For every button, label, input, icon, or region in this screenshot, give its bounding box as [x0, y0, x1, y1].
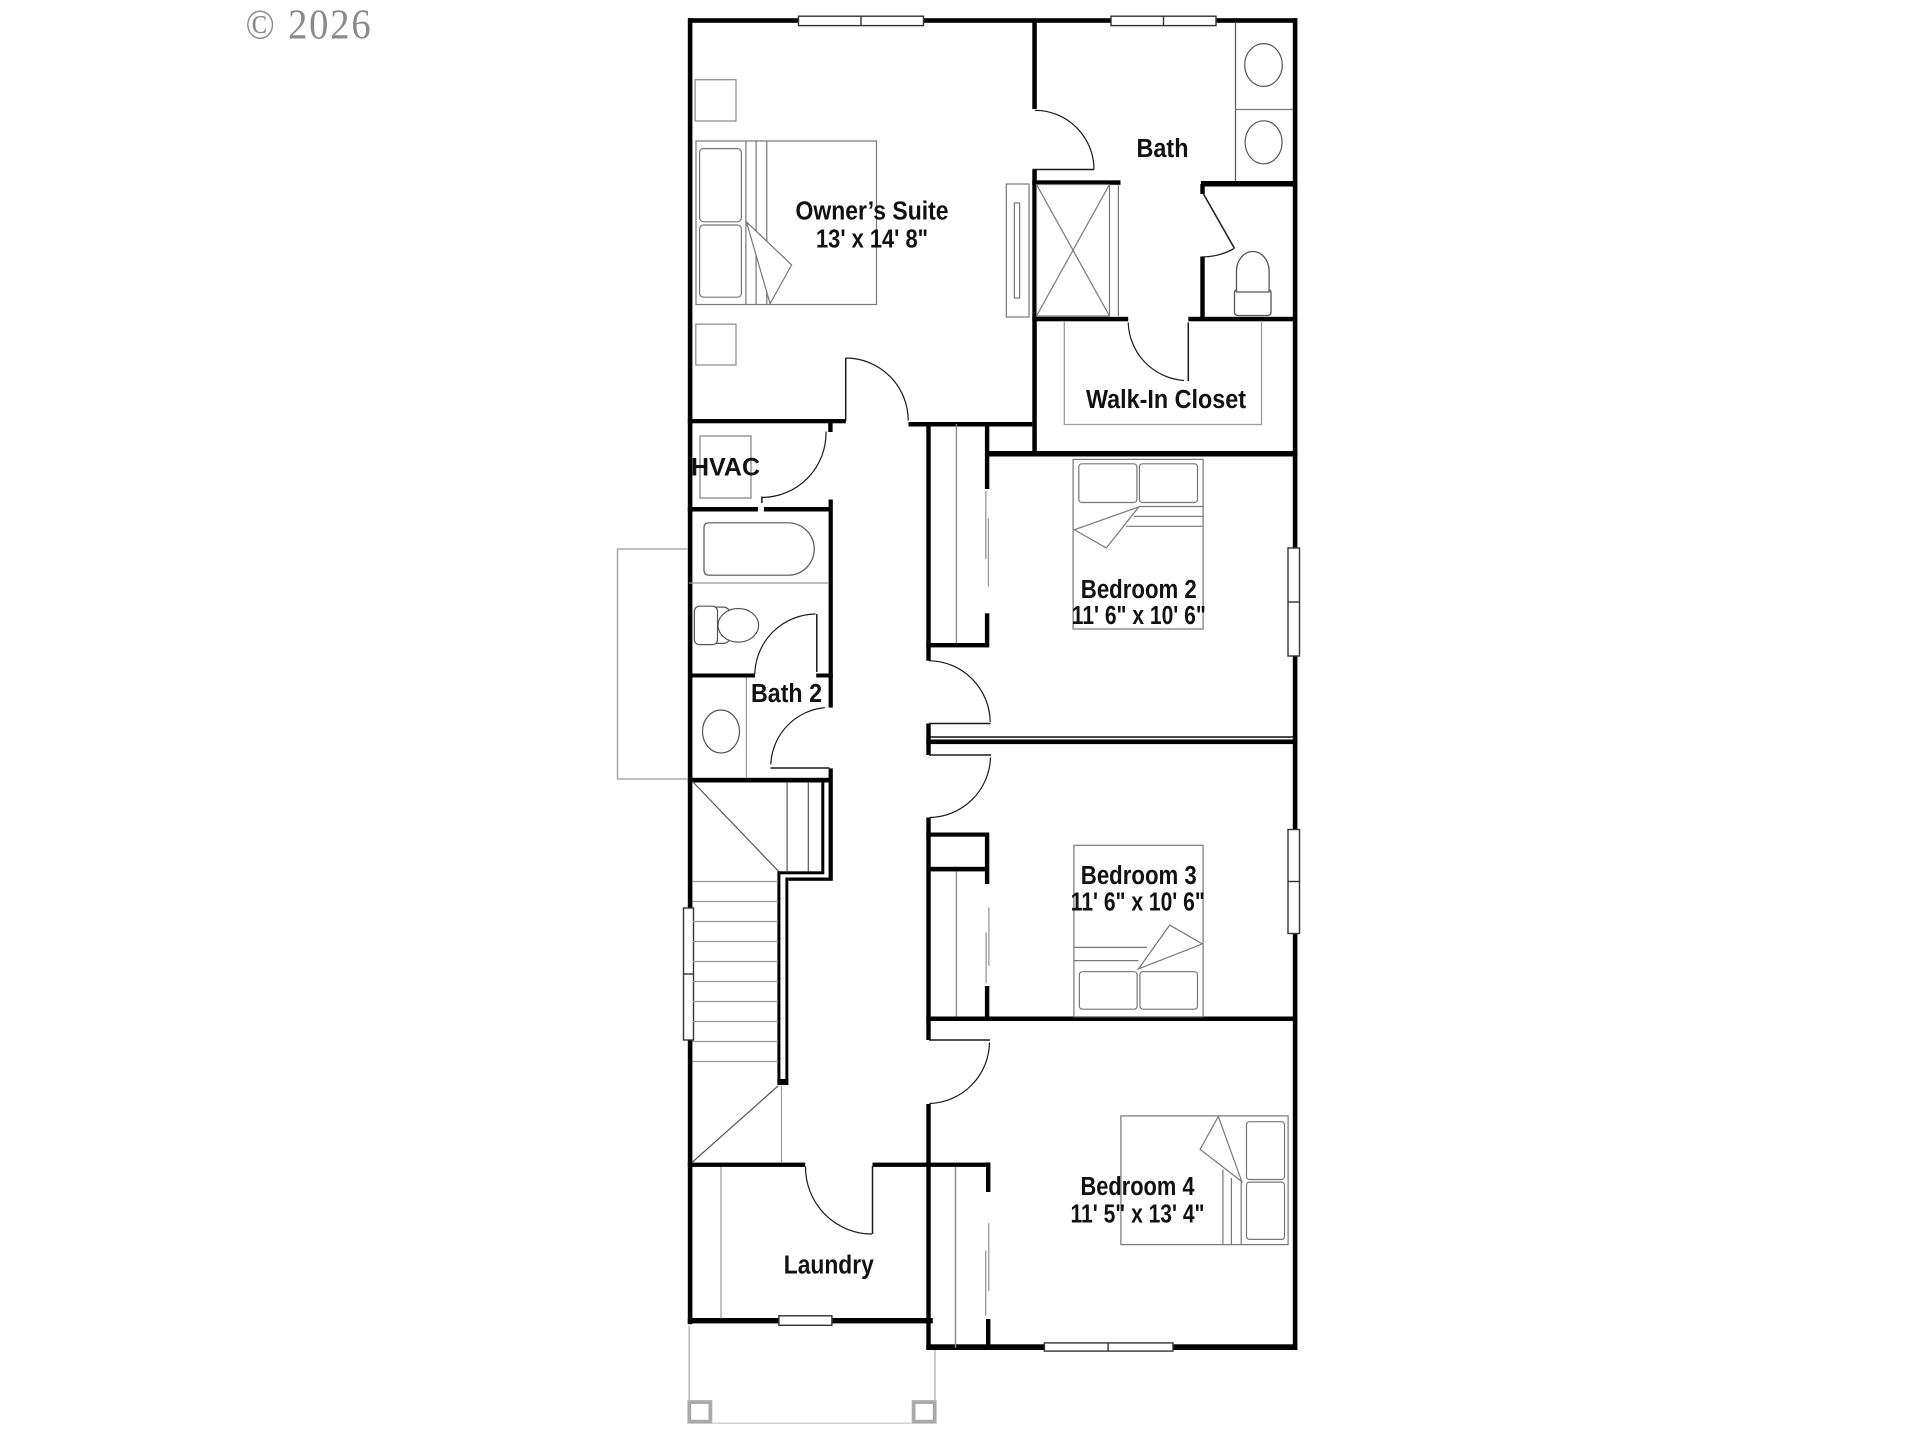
svg-text:11' 6" x 10' 6": 11' 6" x 10' 6"	[1071, 889, 1205, 917]
svg-text:Laundry: Laundry	[784, 1252, 875, 1280]
svg-text:Bath 2: Bath 2	[751, 680, 822, 708]
svg-text:Bedroom 3: Bedroom 3	[1081, 862, 1197, 890]
svg-text:Bedroom 2: Bedroom 2	[1081, 576, 1197, 604]
svg-text:11' 6" x 10' 6": 11' 6" x 10' 6"	[1072, 602, 1206, 630]
svg-text:Bath: Bath	[1137, 135, 1189, 163]
svg-text:Walk-In Closet: Walk-In Closet	[1086, 386, 1246, 414]
svg-text:13' x 14' 8": 13' x 14' 8"	[816, 226, 928, 254]
svg-text:Bedroom 4: Bedroom 4	[1081, 1173, 1196, 1201]
svg-text:HVAC: HVAC	[691, 454, 760, 482]
svg-text:© 2026: © 2026	[246, 3, 373, 49]
svg-text:Owner’s Suite: Owner’s Suite	[796, 198, 949, 226]
svg-text:11' 5" x 13' 4": 11' 5" x 13' 4"	[1071, 1201, 1205, 1229]
